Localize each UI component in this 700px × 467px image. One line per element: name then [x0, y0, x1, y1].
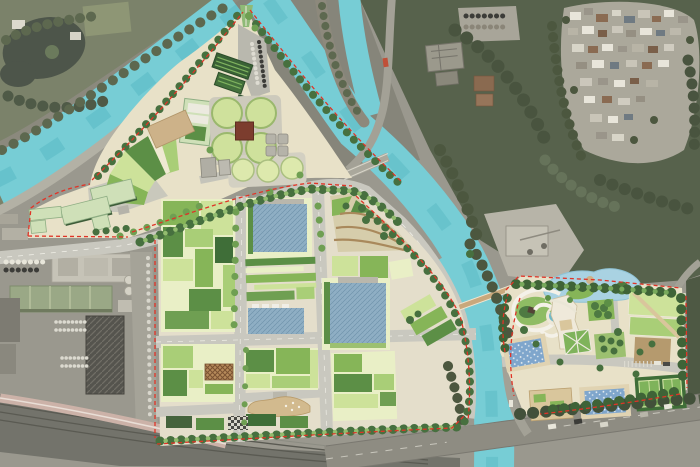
courtyard-garden	[563, 329, 592, 354]
satellite-village	[561, 2, 700, 163]
car	[509, 400, 513, 407]
green-roof-warehouse	[10, 286, 112, 312]
solar-building-3	[248, 304, 304, 334]
satellite-master-plan-image	[0, 0, 700, 467]
satellite-tilled-plot	[474, 76, 494, 91]
solar-building-1	[246, 198, 312, 260]
industrial-hatched-building	[86, 316, 124, 394]
tree-grove-square	[594, 332, 626, 360]
terraced-stripes	[245, 257, 316, 301]
plot-block-G	[331, 351, 397, 421]
pergola-lattice	[205, 364, 233, 380]
master-plan-rendering	[0, 0, 700, 467]
plot-block-E2	[244, 348, 318, 390]
solar-building-2	[322, 277, 390, 350]
central-hub	[236, 122, 254, 140]
